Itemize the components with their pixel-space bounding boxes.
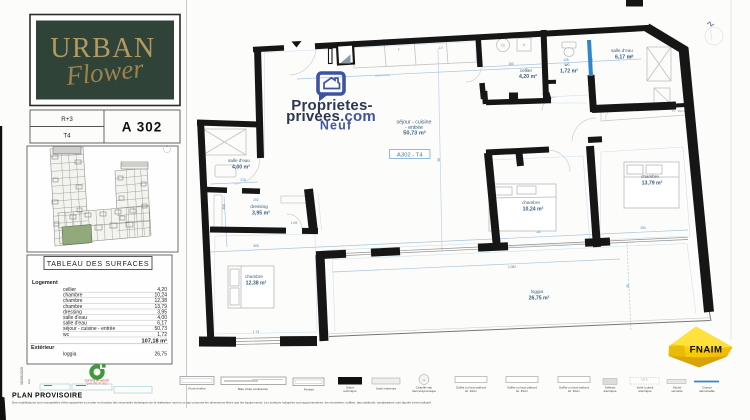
svg-text:CE: CE (501, 44, 506, 48)
svg-text:1,72 m²: 1,72 m² (560, 69, 578, 75)
svg-text:wc: wc (564, 62, 569, 67)
svg-text:Ht. 25cm: Ht. 25cm (516, 389, 529, 393)
svg-text:salle d'eau: salle d'eau (611, 48, 633, 53)
svg-text:A302 - T4: A302 - T4 (397, 153, 423, 159)
svg-text:Baie vitrée coulissante: Baie vitrée coulissante (238, 387, 268, 391)
svg-text:107,18 m²: 107,18 m² (142, 338, 168, 345)
svg-text:26,75: 26,75 (154, 352, 167, 358)
svg-text:chambre: chambre (522, 200, 540, 205)
svg-text:3,95 m²: 3,95 m² (252, 211, 270, 217)
svg-text:N: N (166, 144, 168, 148)
svg-text:202: 202 (253, 198, 259, 202)
svg-text:10,24 m²: 10,24 m² (523, 207, 544, 213)
svg-text:chambre: chambre (641, 174, 659, 179)
svg-text:13,79 m²: 13,79 m² (642, 181, 663, 187)
svg-text:Ht. 30cm: Ht. 30cm (568, 389, 581, 393)
svg-text:M: M (523, 43, 526, 47)
svg-text:V.R.E: V.R.E (641, 378, 648, 382)
svg-text:30: 30 (626, 284, 630, 288)
svg-text:PL. 38cm: PL. 38cm (672, 109, 685, 113)
svg-text:505: 505 (253, 244, 259, 248)
svg-text:6,17 m²: 6,17 m² (615, 55, 633, 61)
svg-text:A 302: A 302 (122, 120, 163, 135)
svg-text:12,38 m²: 12,38 m² (246, 281, 267, 287)
svg-text:T4: T4 (63, 133, 71, 140)
svg-text:serviette: serviette (671, 389, 683, 393)
svg-text:électrique: électrique (638, 389, 651, 393)
svg-text:démontable: démontable (699, 389, 715, 393)
svg-text:LV: LV (439, 46, 444, 50)
svg-text:Logement: Logement (32, 280, 58, 286)
svg-text:18/09/2025: 18/09/2025 (20, 367, 24, 385)
svg-text:Extérieur: Extérieur (31, 345, 55, 351)
svg-text:Unité intérieure: Unité intérieure (376, 387, 397, 391)
svg-text:26,75 m²: 26,75 m² (529, 296, 550, 302)
svg-text:HiA: HiA (27, 379, 31, 384)
svg-text:dressing: dressing (250, 204, 268, 209)
svg-text:294: 294 (640, 226, 646, 230)
svg-text:loggia: loggia (531, 289, 544, 294)
svg-text:électrique: électrique (603, 389, 616, 393)
svg-text:180: 180 (508, 62, 514, 66)
svg-text:F: F (398, 48, 401, 52)
svg-text:4,00 m²: 4,00 m² (232, 165, 250, 171)
svg-text:salle d'eau: salle d'eau (228, 158, 250, 163)
svg-text:technique: technique (343, 389, 356, 393)
svg-text:38: 38 (437, 158, 441, 162)
svg-text:R+3: R+3 (61, 116, 73, 123)
svg-text:FNAIM: FNAIM (690, 345, 723, 356)
svg-text:Neuf: Neuf (320, 118, 352, 132)
svg-text:50,73 m²: 50,73 m² (403, 130, 426, 137)
svg-text:loggia: loggia (63, 352, 77, 358)
svg-text:TABLEAU DES SURFACES: TABLEAU DES SURFACES (47, 260, 150, 268)
svg-text:Porte fenêtre: Porte fenêtre (188, 387, 206, 391)
svg-text:cellier: cellier (520, 68, 532, 73)
svg-text:chambre: chambre (245, 274, 263, 279)
svg-text:1,05: 1,05 (291, 221, 297, 225)
svg-text:thermodynamique: thermodynamique (412, 389, 436, 393)
svg-text:Ht. 20cm: Ht. 20cm (465, 389, 478, 393)
svg-text:1,082: 1,082 (508, 265, 516, 269)
svg-text:4,20 m²: 4,20 m² (519, 74, 537, 80)
svg-text:308: 308 (222, 204, 226, 210)
svg-text:PLAN PROVISOIRE: PLAN PROVISOIRE (12, 393, 83, 400)
svg-text:Fenêtre: Fenêtre (304, 388, 315, 392)
svg-text:Des modifications sont suscept: Des modifications sont susceptibles d'êt… (12, 401, 432, 405)
